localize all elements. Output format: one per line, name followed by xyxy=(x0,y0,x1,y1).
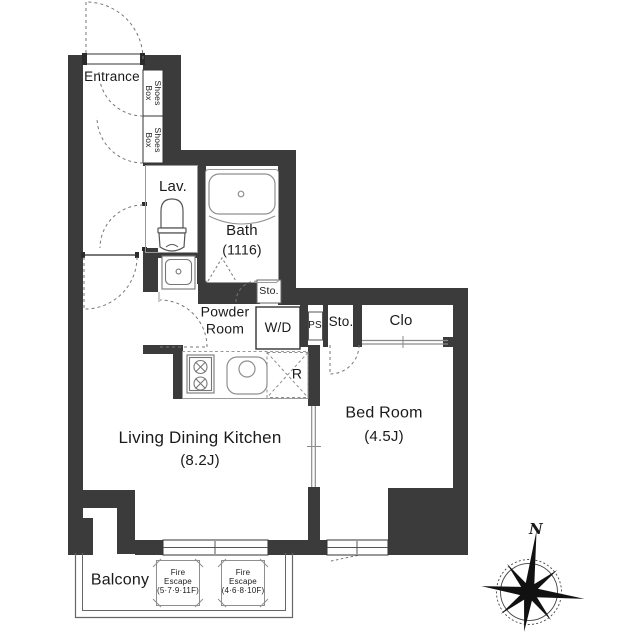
closet-sliding-door xyxy=(362,336,448,348)
kitchen-sink-icon xyxy=(227,357,267,394)
walls xyxy=(68,55,468,555)
label-fire-escape-lower-floors: Fire Escape (4·6·8·10F) xyxy=(222,568,265,596)
room-label-shoes-box-upper: Shoes Box xyxy=(144,80,162,105)
label-fire-escape-upper-floors: Fire Escape (5·7·9·11F) xyxy=(157,568,199,596)
bedroom-sliding-door xyxy=(307,406,321,487)
room-label-storage-by-bath: Sto. xyxy=(259,285,278,297)
room-size-ldk: (8.2J) xyxy=(180,452,220,470)
washbasin-icon xyxy=(162,256,195,289)
room-size-bath: (1116) xyxy=(222,242,262,259)
compass-north-label: N xyxy=(529,521,543,539)
room-label-entrance: Entrance xyxy=(84,69,140,85)
room-label-shoes-box-lower: Shoes Box xyxy=(144,127,162,152)
hall-threshold xyxy=(81,252,139,258)
label-refrigerator-space: R xyxy=(292,366,302,383)
room-label-washer-dryer: W/D xyxy=(265,320,292,336)
bedroom-window xyxy=(327,540,388,555)
toilet-icon xyxy=(158,199,186,251)
room-label-powder-room: Powder Room xyxy=(201,303,250,336)
compass-rose-icon xyxy=(472,524,592,640)
ldk-window xyxy=(163,540,268,555)
stove-icon xyxy=(187,355,214,393)
room-label-ldk: Living Dining Kitchen xyxy=(119,428,282,448)
room-label-balcony: Balcony xyxy=(91,572,149,591)
room-label-bedroom: Bed Room xyxy=(345,405,422,424)
entrance-door-leaf xyxy=(82,53,145,65)
room-label-storage: Sto. xyxy=(329,314,354,330)
door-swing-arcs xyxy=(84,2,388,561)
floorplan-canvas: Entrance Shoes Box Shoes Box Lav. Bath (… xyxy=(0,0,640,640)
bathtub-icon xyxy=(209,174,275,224)
room-label-bath: Bath xyxy=(226,222,258,240)
room-label-pipe-space: PS xyxy=(308,320,322,332)
room-label-closet: Clo xyxy=(389,312,412,330)
room-label-lavatory: Lav. xyxy=(159,178,187,196)
room-size-bedroom: (4.5J) xyxy=(364,428,404,446)
